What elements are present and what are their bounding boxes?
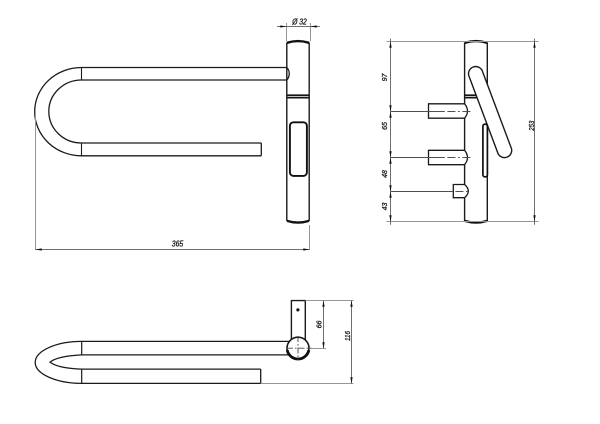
svg-text:365: 365 (172, 240, 184, 249)
svg-text:66: 66 (315, 320, 324, 329)
svg-text:97: 97 (380, 73, 389, 82)
svg-text:43: 43 (380, 202, 389, 211)
svg-text:253: 253 (527, 120, 536, 131)
svg-text:Ø 32: Ø 32 (291, 17, 307, 26)
svg-text:116: 116 (343, 330, 352, 341)
svg-text:48: 48 (380, 169, 389, 178)
svg-text:65: 65 (380, 121, 389, 130)
